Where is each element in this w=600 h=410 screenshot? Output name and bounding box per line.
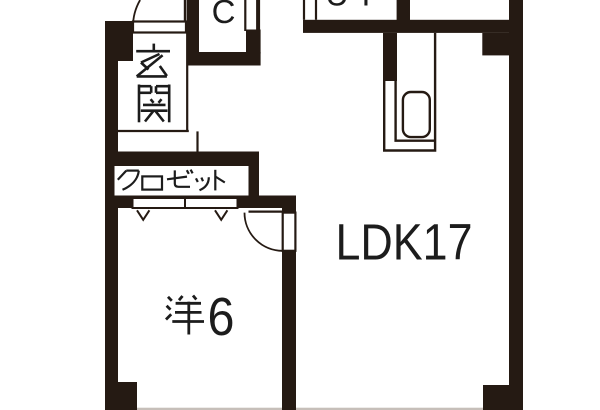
svg-text:LDK17: LDK17 — [336, 214, 473, 271]
svg-text:C: C — [212, 0, 236, 30]
svg-text:T: T — [356, 0, 376, 13]
svg-text:6: 6 — [208, 287, 235, 347]
svg-text:U: U — [325, 0, 349, 13]
